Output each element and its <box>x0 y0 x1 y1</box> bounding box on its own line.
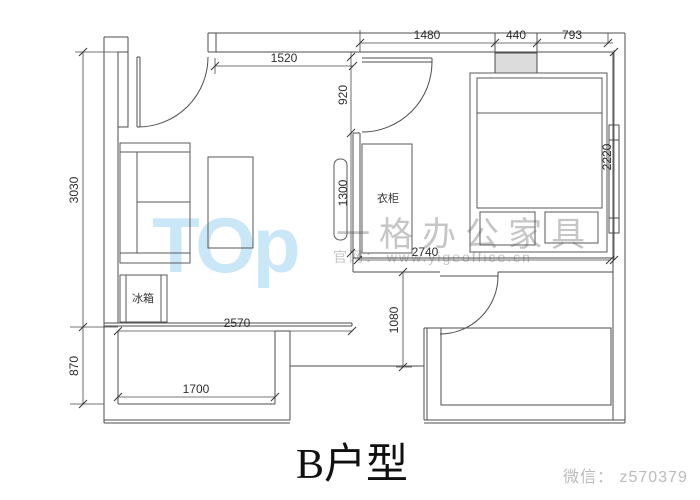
bedroom-top-window <box>495 53 537 73</box>
dim-2740: 2740 <box>412 245 439 259</box>
dim-1080: 1080 <box>387 306 401 333</box>
dim-870: 870 <box>67 356 81 376</box>
dim-1520: 1520 <box>271 51 298 65</box>
plan-title: B户型 <box>296 442 408 488</box>
entry-door-swing <box>138 57 208 127</box>
bedroom-door-leaf <box>362 58 432 62</box>
dim-2220: 2220 <box>600 143 614 170</box>
windows <box>495 33 619 233</box>
doors <box>137 57 498 334</box>
watermark-logo: TOp <box>152 201 298 289</box>
floor-plan-canvas: TOp 一格办公家具 官网： www.yigeoffice.cn 微信： z57… <box>0 0 700 500</box>
dim-1480: 1480 <box>414 28 441 42</box>
dim-793: 793 <box>562 28 582 42</box>
floor-plan-page: TOp 一格办公家具 官网： www.yigeoffice.cn 微信： z57… <box>0 0 700 500</box>
dim-920: 920 <box>336 85 350 105</box>
fridge-label: 冰箱 <box>132 291 154 305</box>
entry-wall-pier <box>118 52 128 127</box>
dim-440: 440 <box>506 28 526 42</box>
watermark-wechat: 微信： z570379 <box>563 468 688 486</box>
bathroom-door-swing <box>440 276 498 334</box>
dim-1300: 1300 <box>336 179 350 206</box>
bathroom-door-leaf <box>440 272 498 276</box>
dim-3030: 3030 <box>67 176 81 203</box>
entry-door-leaf <box>137 57 140 127</box>
bedroom-door-swing <box>362 62 432 132</box>
bathroom-inner-wall <box>441 328 611 405</box>
wardrobe-label: 衣柜 <box>377 191 399 205</box>
dim-2570: 2570 <box>224 316 251 330</box>
dim-1700: 1700 <box>183 382 210 396</box>
